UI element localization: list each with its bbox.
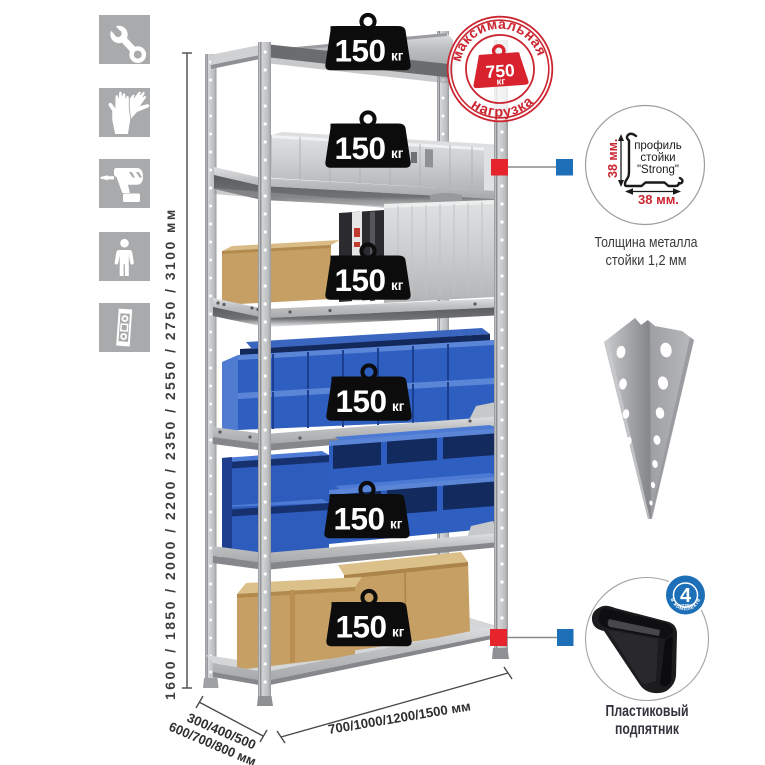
svg-text:38 мм.: 38 мм. [606, 139, 620, 178]
svg-text:профиль: профиль [634, 140, 682, 152]
svg-text:Толщина металла: Толщина металла [595, 234, 699, 251]
svg-text:подпятник: подпятник [615, 721, 680, 738]
svg-text:Пластиковый: Пластиковый [606, 703, 689, 720]
svg-text:стойки: стойки [640, 152, 675, 164]
svg-text:38 мм.: 38 мм. [638, 192, 679, 207]
svg-text:1600 / 1850 / 2000 / 2200 / 23: 1600 / 1850 / 2000 / 2200 / 2350 / 2550 … [162, 207, 178, 700]
svg-text:"Strong": "Strong" [637, 164, 679, 176]
svg-text:стойки 1,2 мм: стойки 1,2 мм [606, 252, 687, 269]
svg-text:кг: кг [496, 76, 506, 88]
